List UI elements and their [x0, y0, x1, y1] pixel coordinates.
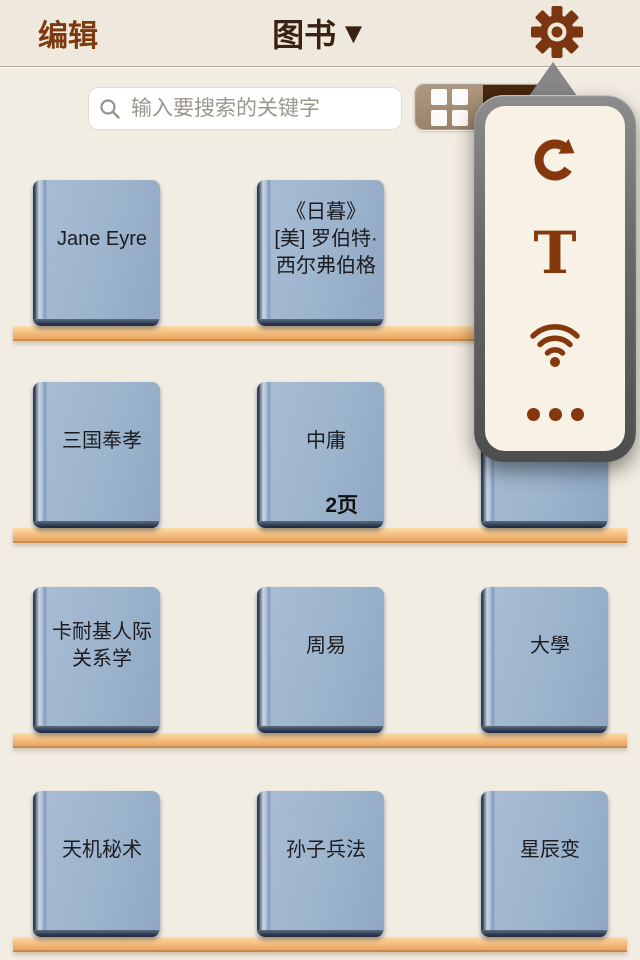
- book-title: 星辰变: [498, 791, 602, 909]
- book-title: 三国奉孝: [50, 382, 154, 500]
- wifi-icon: [528, 322, 582, 368]
- book-jane-eyre[interactable]: Jane Eyre: [33, 180, 160, 326]
- search-bar: [88, 87, 402, 130]
- shelf: [13, 733, 627, 748]
- book-xingchenbian[interactable]: 星辰变: [481, 791, 608, 937]
- book-title: 卡耐基人际关系学: [50, 587, 154, 705]
- book-title: 孙子兵法: [274, 791, 378, 909]
- book-title: 中庸: [274, 382, 378, 500]
- popover-arrow: [529, 62, 577, 96]
- settings-button[interactable]: [529, 3, 585, 63]
- book-zhongyong[interactable]: 中庸 2页: [257, 382, 384, 528]
- book-title: 《日暮》[美] 罗伯特·西尔弗伯格: [274, 180, 378, 298]
- page-count-badge: 2页: [325, 489, 358, 519]
- book-zhouyi[interactable]: 周易: [257, 587, 384, 733]
- book-title: 周易: [274, 587, 378, 705]
- book-sunzi-bingfa[interactable]: 孙子兵法: [257, 791, 384, 937]
- text-size-menu-item[interactable]: T: [485, 224, 625, 282]
- book-sanguo-fengxiao[interactable]: 三国奉孝: [33, 382, 160, 528]
- book-title: 天机秘术: [50, 791, 154, 909]
- search-input[interactable]: [129, 96, 404, 122]
- book-carnegie[interactable]: 卡耐基人际关系学: [33, 587, 160, 733]
- book-rimu[interactable]: 《日暮》[美] 罗伯特·西尔弗伯格: [257, 180, 384, 326]
- settings-popover-content: T: [485, 106, 625, 451]
- settings-popover: T: [474, 95, 636, 462]
- more-ellipsis-icon: [527, 408, 584, 421]
- grid-view-icon: [431, 89, 468, 126]
- grid-view-button[interactable]: [416, 85, 483, 129]
- book-title: 大學: [498, 587, 602, 705]
- text-size-icon: T: [533, 224, 576, 282]
- more-menu-item[interactable]: [485, 408, 625, 421]
- shelf: [13, 528, 627, 543]
- chevron-down-icon: ▼: [339, 18, 368, 51]
- shelf: [13, 937, 627, 952]
- book-title: Jane Eyre: [50, 180, 154, 298]
- gear-icon: [529, 3, 585, 63]
- navigation-bar: 编辑 图书 ▼: [0, 0, 640, 67]
- refresh-menu-item[interactable]: [485, 136, 625, 184]
- search-icon: [99, 98, 121, 120]
- book-tianji-mishu[interactable]: 天机秘术: [33, 791, 160, 937]
- page-title: 图书: [272, 10, 336, 56]
- bookshelf-screen: 编辑 图书 ▼: [0, 0, 640, 960]
- book-daxue[interactable]: 大學: [481, 587, 608, 733]
- refresh-icon: [531, 136, 579, 184]
- wifi-transfer-menu-item[interactable]: [485, 322, 625, 368]
